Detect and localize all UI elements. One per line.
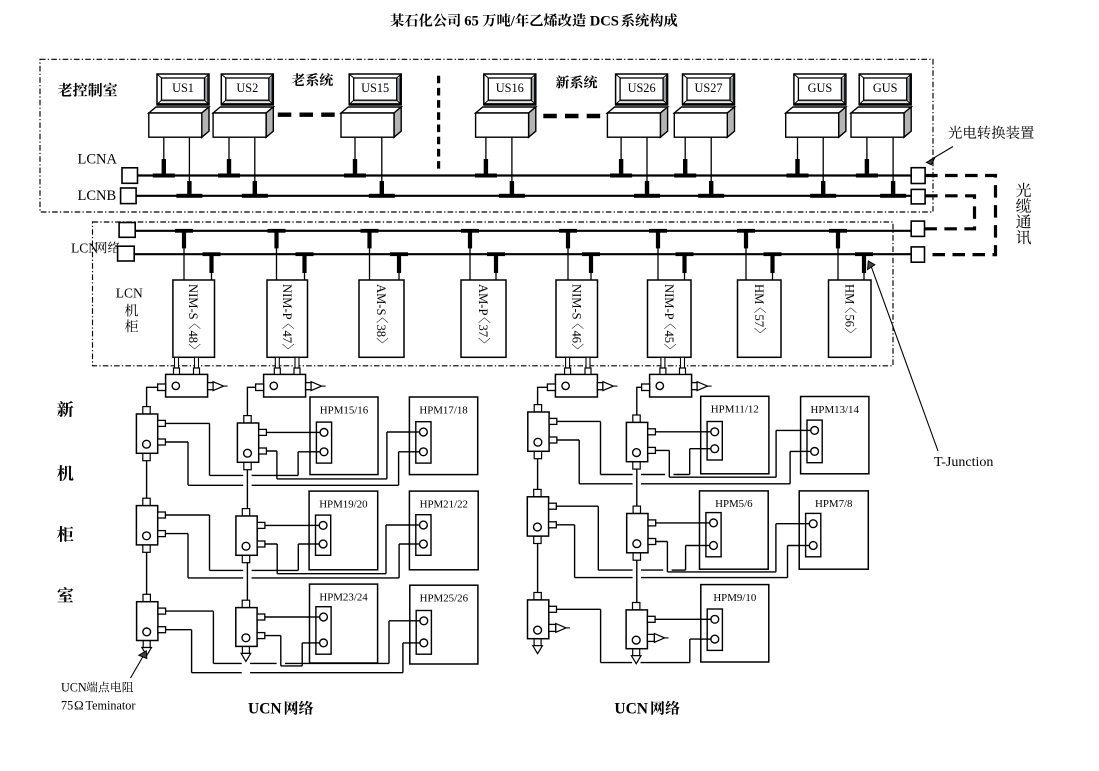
- svg-text:38: 38: [374, 325, 388, 338]
- svg-text:UCN: UCN: [248, 701, 282, 718]
- svg-text:NIM-P: NIM-P: [280, 284, 294, 320]
- svg-text:HPM5/6: HPM5/6: [715, 498, 753, 510]
- svg-text:US26: US26: [628, 81, 656, 95]
- svg-text:LCN: LCN: [71, 240, 98, 255]
- svg-text:75: 75: [61, 699, 73, 713]
- svg-text:US15: US15: [361, 81, 389, 95]
- svg-text:NIM-S: NIM-S: [569, 284, 583, 320]
- svg-text:37: 37: [476, 325, 490, 338]
- svg-text:48: 48: [186, 331, 200, 344]
- svg-text:T-Junction: T-Junction: [934, 455, 993, 470]
- svg-text:DCS: DCS: [590, 14, 619, 30]
- svg-text:AM-S: AM-S: [374, 284, 388, 316]
- svg-text:HPM15/16: HPM15/16: [320, 404, 369, 416]
- svg-text:GUS: GUS: [808, 81, 833, 95]
- svg-text:LCNB: LCNB: [78, 188, 117, 204]
- svg-text:HM: HM: [842, 284, 856, 304]
- svg-text:US16: US16: [496, 81, 524, 95]
- svg-text:HPM21/22: HPM21/22: [420, 498, 468, 510]
- svg-text:LCNA: LCNA: [78, 152, 118, 168]
- svg-text:US2: US2: [236, 81, 258, 95]
- svg-text:HPM23/24: HPM23/24: [319, 591, 368, 603]
- svg-text:HPM25/26: HPM25/26: [420, 593, 469, 605]
- svg-text:HPM9/10: HPM9/10: [713, 592, 757, 604]
- svg-text:Teminator: Teminator: [86, 699, 136, 713]
- svg-text:US27: US27: [694, 81, 722, 95]
- svg-text:HPM17/18: HPM17/18: [419, 404, 468, 416]
- svg-text:HM: HM: [752, 284, 766, 304]
- svg-text:57: 57: [752, 315, 766, 328]
- svg-text:US1: US1: [172, 81, 194, 95]
- svg-text:46: 46: [569, 331, 583, 344]
- svg-text:AM-P: AM-P: [476, 284, 490, 316]
- svg-text:HPM7/8: HPM7/8: [815, 498, 853, 510]
- svg-text:NIM-P: NIM-P: [662, 284, 676, 320]
- svg-text:47: 47: [280, 331, 294, 344]
- svg-text:Ω: Ω: [74, 698, 84, 713]
- svg-text:HPM11/12: HPM11/12: [711, 404, 759, 416]
- svg-text:56: 56: [842, 315, 856, 328]
- svg-text:HPM13/14: HPM13/14: [811, 404, 860, 416]
- svg-text:HPM19/20: HPM19/20: [319, 498, 368, 510]
- svg-text:LCN: LCN: [116, 286, 143, 301]
- svg-text:UCN: UCN: [614, 701, 648, 718]
- svg-text:45: 45: [662, 331, 676, 344]
- svg-text:65: 65: [464, 14, 479, 30]
- svg-text:UCN: UCN: [61, 681, 87, 695]
- svg-text:GUS: GUS: [873, 81, 898, 95]
- svg-text:NIM-S: NIM-S: [186, 284, 200, 320]
